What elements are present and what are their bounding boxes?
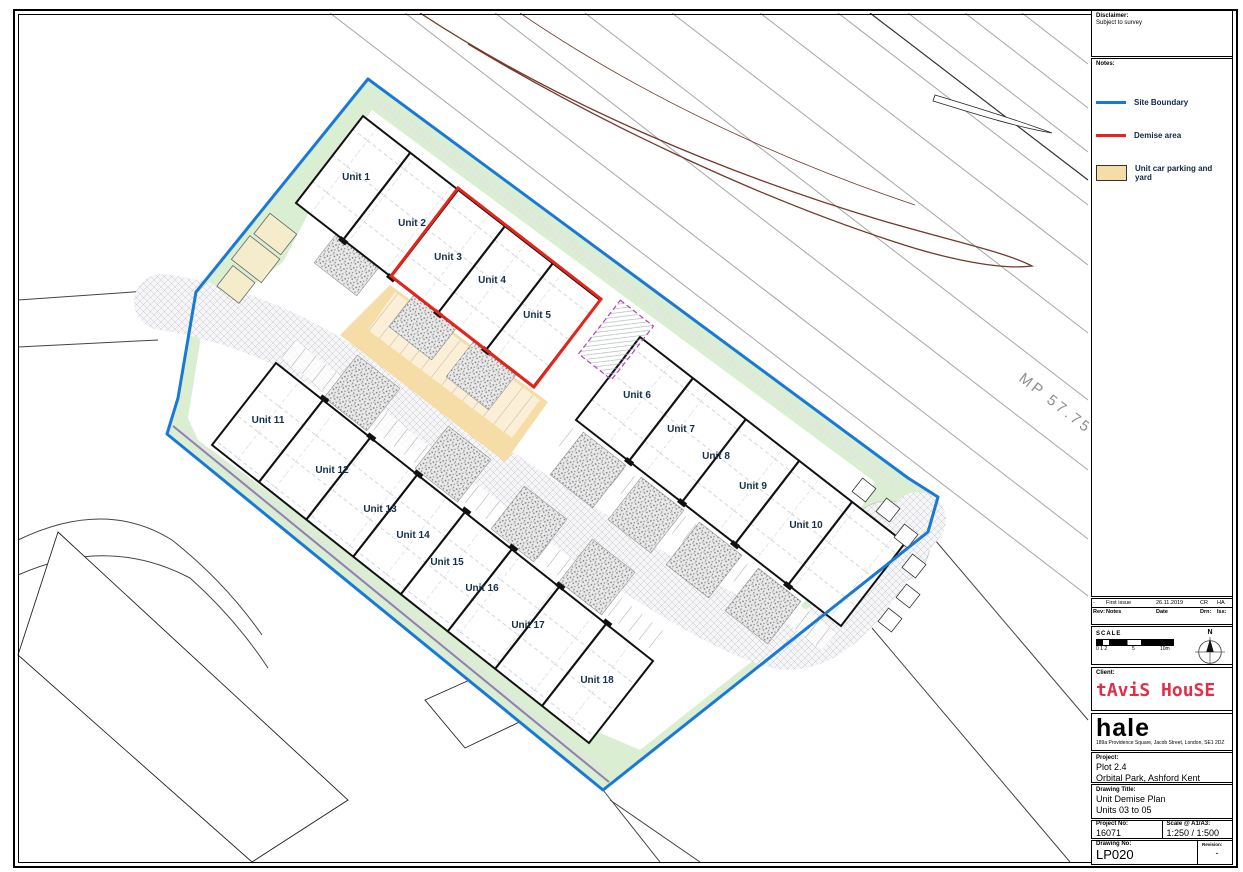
scale-tick-mid: 5 xyxy=(1132,646,1135,652)
site-boundary-swatch xyxy=(1096,101,1126,104)
scale-north-box: SCALE 0 1 2 5 10m N xyxy=(1091,626,1233,665)
north-label: N xyxy=(1207,629,1212,636)
firm-address: 189a Providence Square, Jacob Street, Lo… xyxy=(1096,740,1228,746)
scale-bar-graphic xyxy=(1096,639,1174,646)
revision-rev: - xyxy=(1092,599,1105,607)
project-line2: Orbital Park, Ashford Kent xyxy=(1096,773,1228,783)
drawing-title-label: Drawing Title: xyxy=(1096,787,1228,794)
disclaimer-text: Subject to survey xyxy=(1096,20,1228,27)
sheet-border-inner xyxy=(18,14,1233,863)
drawing-title-box: Drawing Title: Unit Demise Plan Units 03… xyxy=(1091,784,1233,819)
drawing-title-line2: Units 03 to 05 xyxy=(1096,805,1228,816)
legend-label: Demise area xyxy=(1134,131,1181,140)
project-line1: Plot 2.4 xyxy=(1096,762,1228,773)
scale-tick-right: 10m xyxy=(1160,646,1170,652)
revision-header-notes: Notes xyxy=(1105,607,1155,616)
legend-item-parking-yard: Unit car parking and yard xyxy=(1096,164,1228,182)
disclaimer-label: Disclaimer: xyxy=(1096,13,1228,20)
revision-label: Revision: xyxy=(1202,841,1232,848)
client-label: Client: xyxy=(1096,670,1228,677)
legend-label: Site Boundary xyxy=(1134,98,1188,107)
project-no-label: Project No: xyxy=(1096,821,1162,828)
revision-cell: Revision: - xyxy=(1197,841,1232,864)
revision-iss: HA xyxy=(1216,599,1232,607)
firm-name: hale xyxy=(1096,716,1228,740)
notes-box: Notes: Site Boundary Demise area Unit ca… xyxy=(1091,58,1233,597)
revision-table: - First issue 26.11.2019 CR HA Rev: Note… xyxy=(1091,598,1233,625)
demise-area-swatch xyxy=(1096,134,1126,137)
firm-box: hale 189a Providence Square, Jacob Stree… xyxy=(1091,713,1233,751)
client-logo: tAviS HouSE xyxy=(1096,680,1228,701)
project-label: Project: xyxy=(1096,755,1228,762)
north-arrow: N xyxy=(1194,629,1226,665)
legend-label: Unit car parking and yard xyxy=(1135,164,1228,182)
drawing-no-cell: Drawing No: LP020 xyxy=(1092,841,1197,864)
drawing-no-value: LP020 xyxy=(1096,848,1197,861)
legend-item-demise-area: Demise area xyxy=(1096,131,1228,140)
revision-date: 26.11.2019 xyxy=(1155,599,1199,607)
notes-label: Notes: xyxy=(1096,61,1228,68)
disclaimer-box: Disclaimer: Subject to survey xyxy=(1091,10,1233,57)
scale-bar-label: SCALE xyxy=(1096,631,1176,637)
north-arrow-icon xyxy=(1194,636,1226,665)
parking-yard-swatch xyxy=(1096,165,1127,181)
numbers-box: Project No: 16071 Scale @ A1/A3: 1:250 /… xyxy=(1091,820,1233,839)
project-box: Project: Plot 2.4 Orbital Park, Ashford … xyxy=(1091,752,1233,783)
revision-header-date: Date xyxy=(1155,607,1199,616)
legend: Site Boundary Demise area Unit car parki… xyxy=(1096,98,1228,182)
drawing-title-line1: Unit Demise Plan xyxy=(1096,794,1228,805)
revision-drn: CR xyxy=(1199,599,1216,607)
project-no-value: 16071 xyxy=(1096,828,1162,839)
project-no-cell: Project No: 16071 xyxy=(1092,821,1162,838)
revision-value: - xyxy=(1202,848,1232,858)
legend-item-site-boundary: Site Boundary xyxy=(1096,98,1228,107)
scale-tick-left: 0 1 2 xyxy=(1096,646,1107,652)
scale-value: 1:250 / 1:500 xyxy=(1167,828,1233,839)
client-box: Client: tAviS HouSE xyxy=(1091,667,1233,711)
scale-cell: Scale @ A1/A3: 1:250 / 1:500 xyxy=(1162,821,1233,838)
scale-bar: SCALE 0 1 2 5 10m xyxy=(1096,631,1176,653)
revision-header-iss: Iss: xyxy=(1216,607,1232,616)
scale-label: Scale @ A1/A3: xyxy=(1167,821,1233,828)
revision-header-rev: Rev: xyxy=(1092,607,1105,616)
drawing-no-box: Drawing No: LP020 Revision: - xyxy=(1091,840,1233,865)
revision-notes: First issue xyxy=(1105,599,1155,607)
revision-header-drn: Drn: xyxy=(1199,607,1216,616)
drawing-sheet: MP 57.75 xyxy=(0,0,1243,872)
